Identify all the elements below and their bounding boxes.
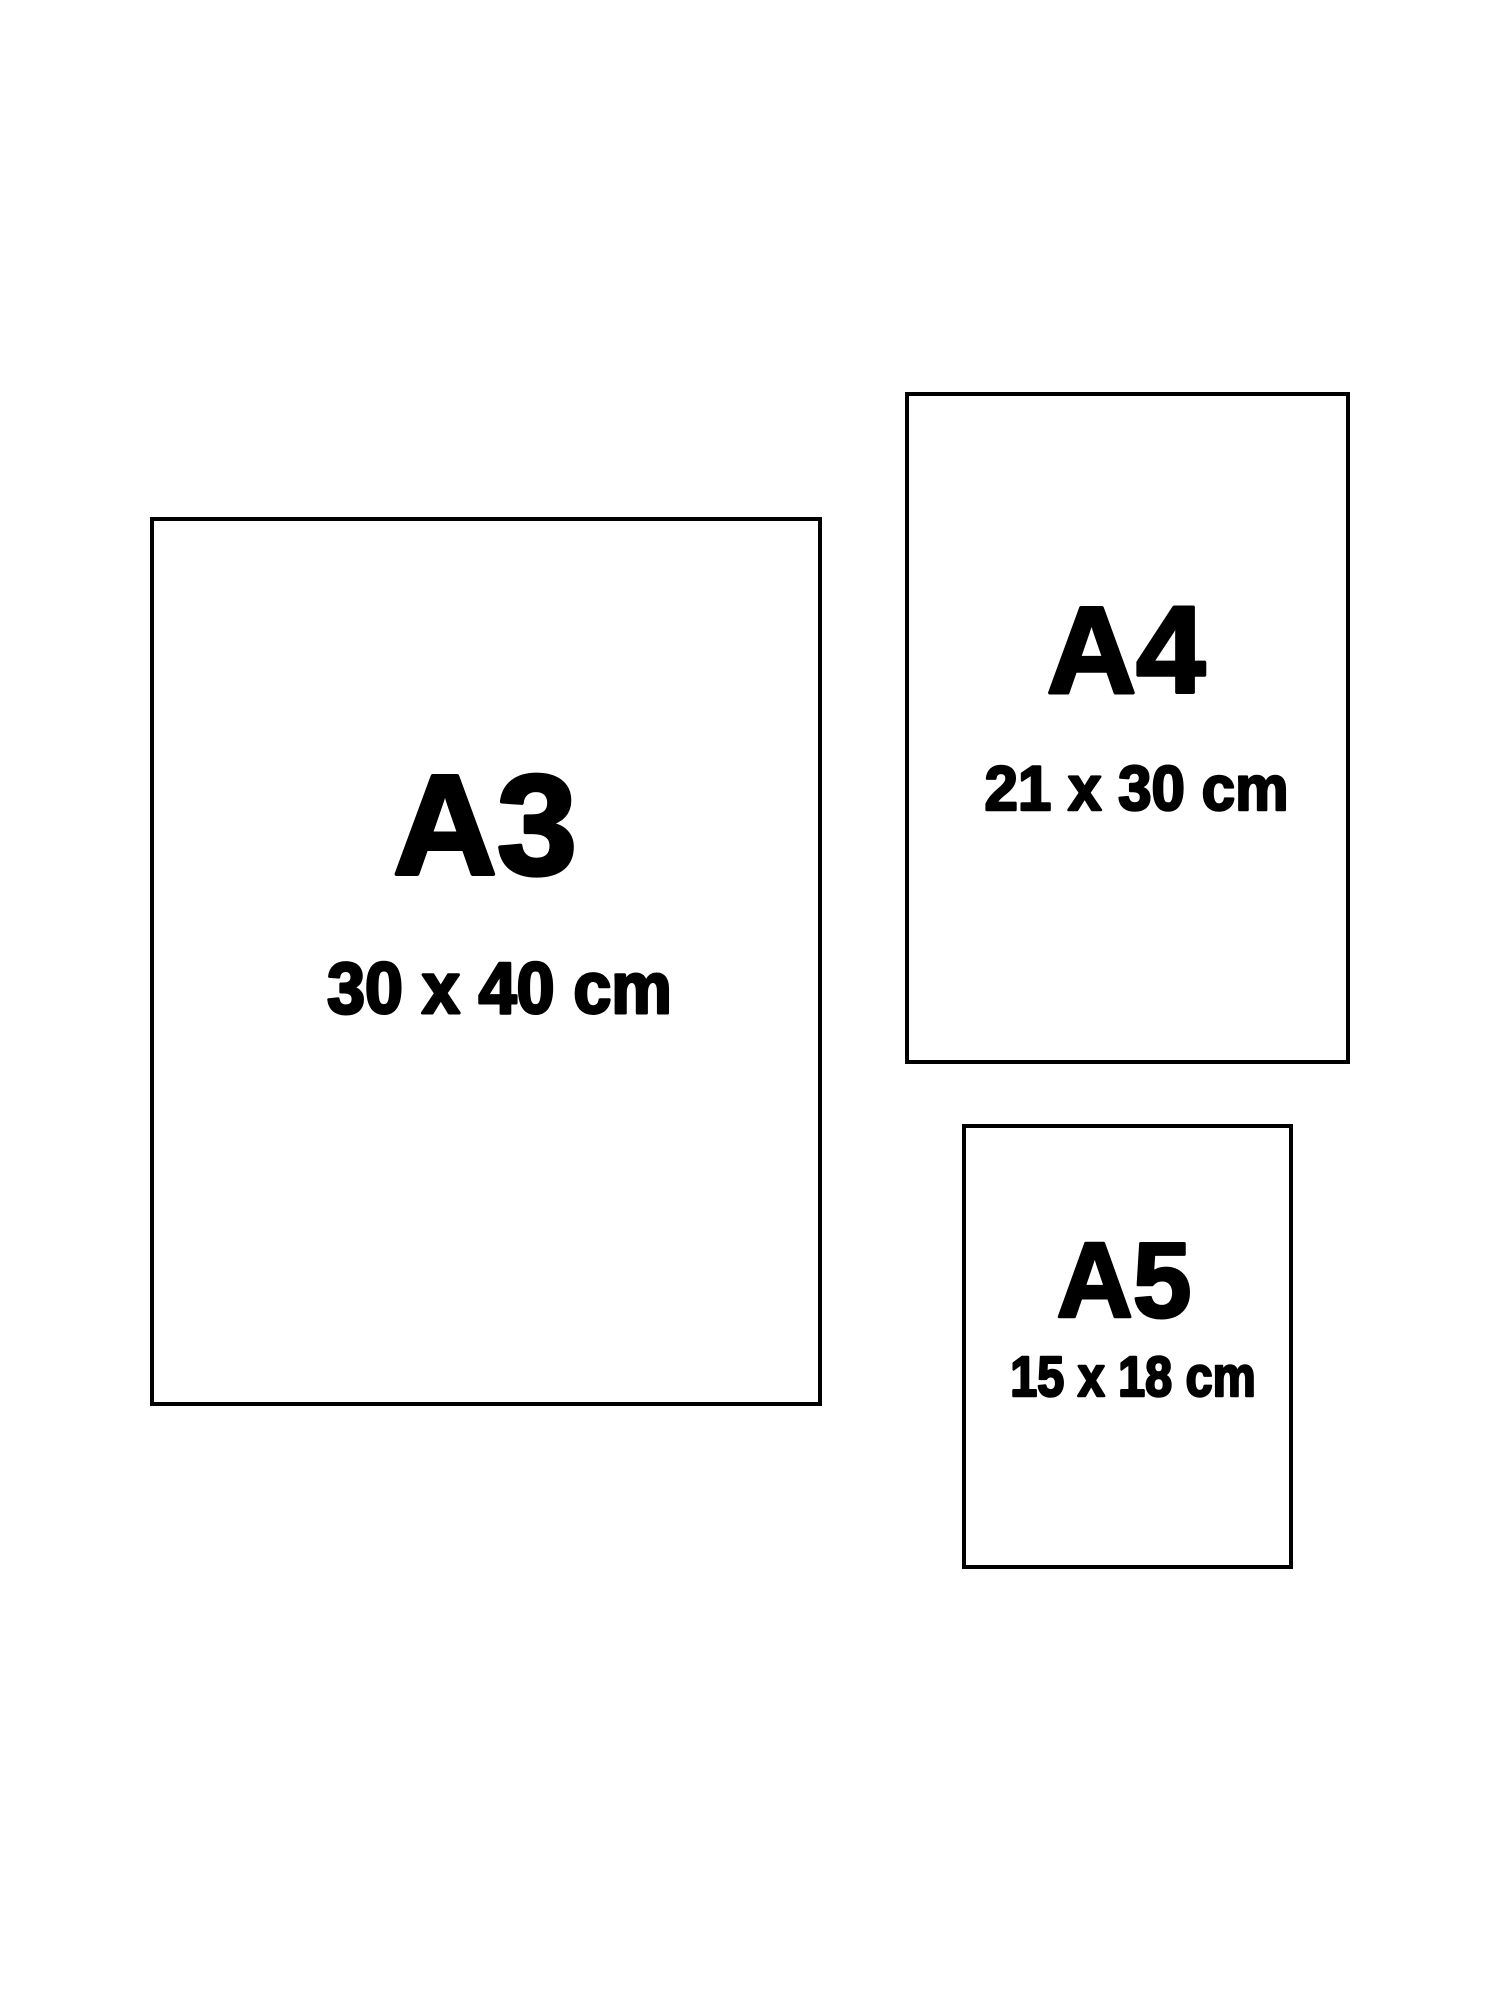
- svg-text:30 x 40 cm: 30 x 40 cm: [327, 947, 672, 1028]
- svg-text:21 x 30 cm: 21 x 30 cm: [984, 753, 1288, 824]
- svg-text:A5: A5: [1057, 1222, 1192, 1340]
- svg-text:15 x 18 cm: 15 x 18 cm: [1010, 1345, 1256, 1408]
- svg-text:A4: A4: [1047, 582, 1206, 720]
- svg-text:A3: A3: [393, 746, 577, 905]
